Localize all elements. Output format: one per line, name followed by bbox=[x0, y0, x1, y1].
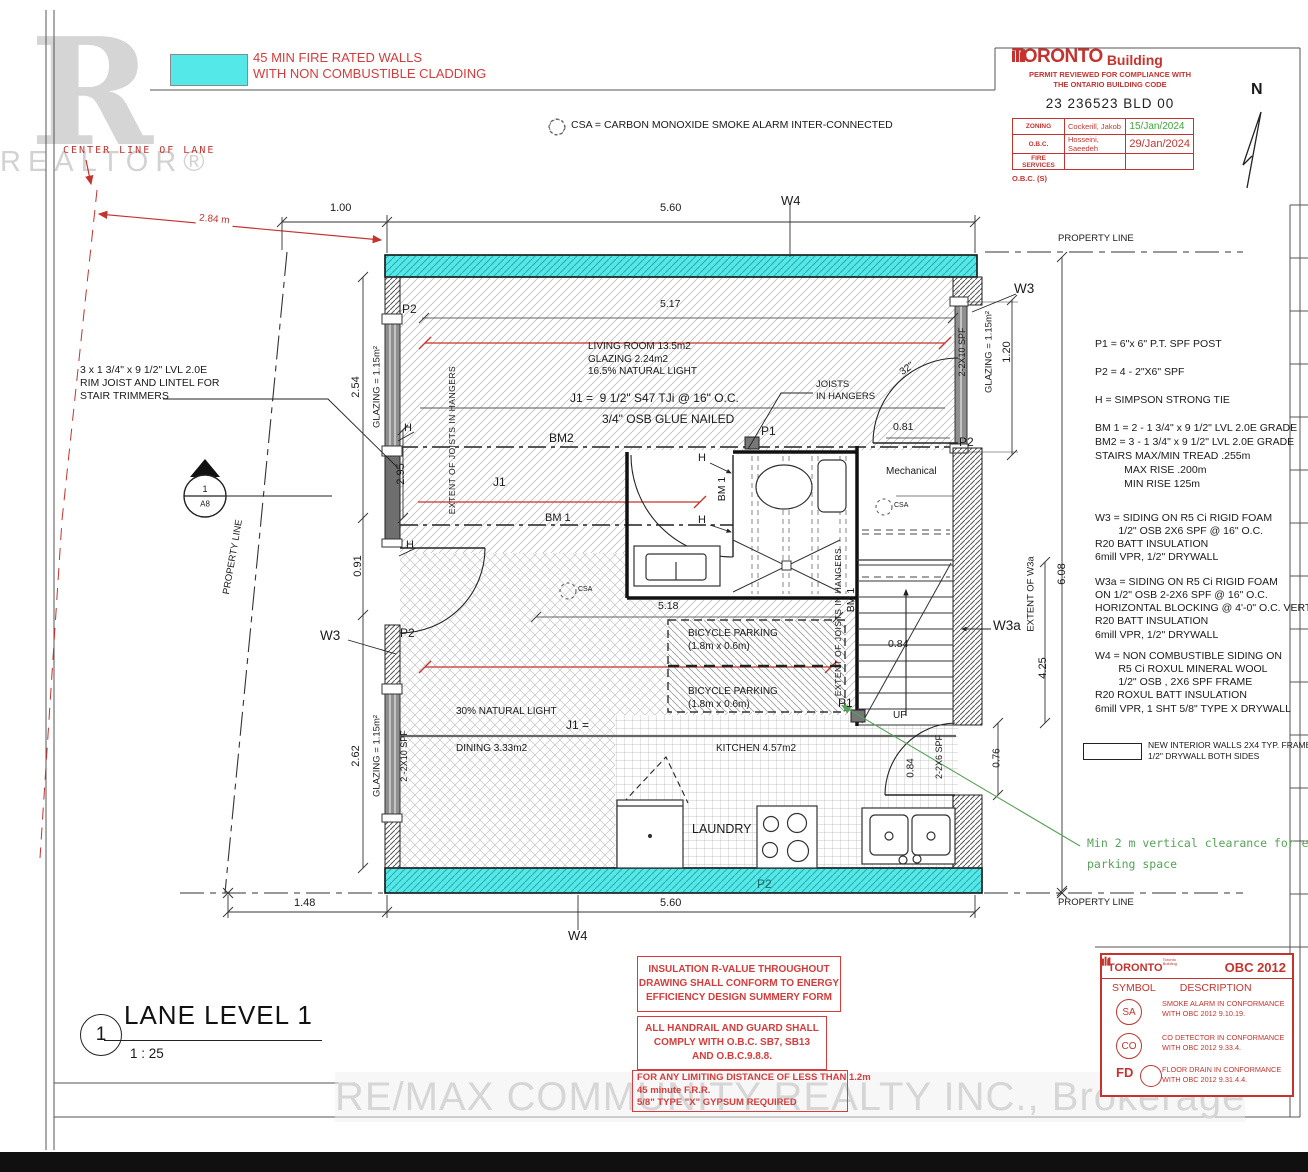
w3a-note: W3a = SIDING ON R5 Ci RIGID FOAM ON 1/2"… bbox=[1095, 576, 1308, 642]
bm1-vertical-2: BM 1 bbox=[845, 588, 857, 613]
mechanical-label: Mechanical bbox=[886, 466, 937, 479]
vanity-sink bbox=[634, 546, 720, 586]
bm2-label: BM2 bbox=[549, 431, 574, 446]
dim-0-81: 0.81 bbox=[893, 421, 913, 434]
review-date: 29/Jan/2024 bbox=[1126, 135, 1194, 154]
lane-centerline-label: CENTER LINE OF LANE bbox=[63, 145, 215, 158]
dim-5-17: 5.17 bbox=[660, 298, 680, 311]
obc-title: OBC 2012 bbox=[1225, 960, 1286, 975]
reviewer-name bbox=[1065, 154, 1126, 170]
joists-hangers-label: JOISTS IN HANGERS bbox=[816, 379, 875, 403]
h-label-bath2: H bbox=[698, 514, 706, 528]
kitchen-label: KITCHEN 4.57m2 bbox=[716, 743, 796, 756]
csa-label-2: CSA bbox=[578, 586, 592, 595]
w3-label-left: W3 bbox=[320, 628, 340, 645]
co-symbol-icon: CO bbox=[1116, 1033, 1142, 1059]
p2-left-mid: P2 bbox=[400, 626, 415, 641]
section-marker-sheet: A8 bbox=[200, 500, 210, 509]
extent-joists-left: EXTENT OF JOISTS IN HANGERS bbox=[447, 366, 457, 514]
lane-note-arrow bbox=[86, 160, 91, 184]
j1-spec-label: J1 = 9 1/2" S47 TJi @ 16" O.C. bbox=[570, 391, 739, 406]
insulation-note-box: INSULATION R-VALUE THROUGHOUT DRAWING SH… bbox=[637, 956, 841, 1012]
obc-col-symbol: SYMBOL bbox=[1112, 982, 1156, 994]
dim-0-84-vert: 0.84 bbox=[906, 758, 917, 777]
w3-note: W3 = SIDING ON R5 Ci RIGID FOAM 1/2" OSB… bbox=[1095, 512, 1272, 565]
w4-label-top: W4 bbox=[781, 193, 801, 209]
dim-1-20: 1.20 bbox=[1001, 341, 1013, 362]
dim-5-60-top: 5.60 bbox=[660, 202, 681, 216]
property-line-bottom: PROPERTY LINE bbox=[1058, 897, 1134, 909]
dim-1-00: 1.00 bbox=[330, 202, 351, 216]
review-date bbox=[1126, 154, 1194, 170]
stamp-subtitle: PERMIT REVIEWED FOR COMPLIANCE WITH THE … bbox=[1012, 70, 1208, 90]
north-arrow-icon bbox=[1243, 112, 1261, 188]
co-desc: CO DETECTOR IN CONFORMANCE WITH OBC 2012… bbox=[1162, 1033, 1284, 1053]
dim-2-62: 2.62 bbox=[350, 745, 362, 766]
dining-label: DINING 3.33m2 bbox=[456, 743, 527, 756]
stamp-footer: O.B.C. (S) bbox=[1012, 174, 1208, 183]
row-label: FIRE SERVICES bbox=[1013, 154, 1065, 170]
limiting-distance-note-box: FOR ANY LIMITING DISTANCE OF LESS THAN 1… bbox=[632, 1070, 848, 1112]
permit-number: 23 236523 BLD 00 bbox=[1012, 96, 1208, 111]
interior-walls-note: NEW INTERIOR WALLS 2X4 TYP. FRAME 1/2" D… bbox=[1148, 740, 1308, 761]
north-label: N bbox=[1251, 80, 1263, 100]
laundry-label: LAUNDRY bbox=[692, 822, 752, 838]
fd-circle-icon bbox=[1140, 1065, 1162, 1087]
fd-desc: FLOOR DRAIN IN CONFORMANCE WITH OBC 2012… bbox=[1162, 1065, 1281, 1085]
brand-building: Building bbox=[1107, 52, 1163, 68]
bottom-bar bbox=[0, 1152, 1308, 1172]
csa-label-mech: CSA bbox=[894, 502, 908, 511]
bm1-label: BM 1 bbox=[545, 512, 571, 526]
p1-label-bottom: P1 bbox=[838, 696, 853, 711]
toronto-logo-icon bbox=[1102, 955, 1113, 966]
w4-note: W4 = NON COMBUSTIBLE SIDING ON R5 Ci ROX… bbox=[1095, 650, 1291, 716]
dim-4-25: 4.25 bbox=[1037, 657, 1049, 678]
j1-eq-label: J1 = bbox=[566, 718, 589, 733]
h-left-2: H bbox=[406, 539, 414, 553]
toronto-building-logo: TORONTO Building bbox=[1012, 46, 1208, 68]
p2-bottom: P2 bbox=[757, 877, 772, 892]
reviewer-name: Cockerill, Jakob bbox=[1065, 119, 1126, 135]
table-row: ZONING Cockerill, Jakob 15/Jan/2024 bbox=[1013, 119, 1194, 135]
p1-label-top: P1 bbox=[761, 424, 776, 439]
w3-label-right: W3 bbox=[1014, 281, 1034, 298]
dim-2-95: 2.95 bbox=[395, 463, 407, 484]
dim-0-91: 0.91 bbox=[352, 555, 364, 576]
csa-note-label: CSA = CARBON MONOXIDE SMOKE ALARM INTER-… bbox=[571, 119, 893, 132]
spf-2x10-right: 2-2X10 SPF bbox=[957, 327, 967, 376]
drawing-number: 1 bbox=[96, 1024, 107, 1046]
p2-right: P2 bbox=[959, 435, 974, 450]
bicycle-parking-2: BICYCLE PARKING (1.8m x 0.6m) bbox=[688, 686, 778, 711]
natural-light-label: 30% NATURAL LIGHT bbox=[456, 706, 557, 719]
glazing-left-bottom: GLAZING = 1.15m² bbox=[372, 715, 383, 797]
w3a-label: W3a bbox=[993, 618, 1021, 635]
stove bbox=[757, 806, 817, 868]
up-label: UP bbox=[893, 710, 907, 723]
extent-joists-right: EXTENT OF JOISTS IN HANGERS bbox=[833, 548, 843, 696]
section-marker-num: 1 bbox=[202, 484, 207, 494]
title-underline bbox=[104, 1040, 322, 1041]
sa-symbol-icon: SA bbox=[1116, 999, 1142, 1025]
h-label-bath1: H bbox=[698, 452, 706, 466]
rim-joist-note: 3 x 1 3/4" x 9 1/2" LVL 2.0E RIM JOIST A… bbox=[80, 364, 219, 403]
row-label: O.B.C. bbox=[1013, 135, 1065, 154]
fire-legend-label: 45 MIN FIRE RATED WALLS WITH NON COMBUST… bbox=[253, 50, 486, 83]
drawing-sheet: R REALTOR® bbox=[0, 0, 1308, 1172]
dim-0-84: 0.84 bbox=[888, 638, 908, 651]
obc-brand-sub: Toronto Building bbox=[1163, 958, 1177, 967]
obc-header: TORONTOToronto Building OBC 2012 bbox=[1102, 955, 1292, 979]
fd-symbol: FD bbox=[1116, 1065, 1133, 1080]
osb-label: 3/4" OSB GLUE NAILED bbox=[602, 412, 734, 427]
dim-0-76: 0.76 bbox=[992, 748, 1003, 767]
csa-icon bbox=[549, 119, 565, 135]
dim-1-48: 1.48 bbox=[294, 897, 315, 911]
sa-desc: SMOKE ALARM IN CONFORMANCE WITH OBC 2012… bbox=[1162, 999, 1284, 1019]
lane-centerline-dashed bbox=[40, 190, 97, 858]
review-date: 15/Jan/2024 bbox=[1126, 119, 1194, 135]
spf-2x10-left: 2 -2X10 SPF bbox=[399, 730, 409, 782]
dim-6-08: 6.08 bbox=[1056, 563, 1068, 584]
bicycle-parking-1: BICYCLE PARKING (1.8m x 0.6m) bbox=[688, 628, 778, 653]
drawing-scale: 1 : 25 bbox=[130, 1046, 164, 1061]
dim-5-18: 5.18 bbox=[658, 600, 678, 613]
stamp-review-table: ZONING Cockerill, Jakob 15/Jan/2024 O.B.… bbox=[1012, 118, 1194, 170]
obc-legend: TORONTOToronto Building OBC 2012 SYMBOL … bbox=[1100, 953, 1294, 1097]
posts-notes: P1 = 6"x 6" P.T. SPF POST P2 = 4 - 2"X6"… bbox=[1095, 338, 1297, 491]
toronto-logo-icon bbox=[1012, 46, 1029, 62]
obc-brand: TORONTO bbox=[1108, 962, 1163, 974]
j1-label: J1 bbox=[493, 475, 506, 490]
row-label: ZONING bbox=[1013, 119, 1065, 135]
handrail-note-box: ALL HANDRAIL AND GUARD SHALL COMPLY WITH… bbox=[637, 1016, 827, 1070]
property-line-top: PROPERTY LINE bbox=[1058, 233, 1134, 245]
laundry-appliance bbox=[617, 800, 683, 868]
h-left-1: H bbox=[404, 422, 412, 436]
w4-label-bottom: W4 bbox=[568, 928, 588, 944]
glazing-left-top: GLAZING = 1.15m² bbox=[372, 346, 383, 428]
dim-2-54: 2.54 bbox=[350, 376, 362, 397]
drawing-number-circle: 1 bbox=[80, 1014, 122, 1056]
extent-w3a-label: EXTENT OF W3a bbox=[1026, 556, 1037, 631]
table-row: O.B.C. Hosseini, Saeedeh 29/Jan/2024 bbox=[1013, 135, 1194, 154]
drawing-title: LANE LEVEL 1 bbox=[124, 1000, 313, 1031]
reviewer-name: Hosseini, Saeedeh bbox=[1065, 135, 1126, 154]
green-clearance-note: Min 2 m vertical clearance for each park… bbox=[1087, 833, 1308, 875]
p2-left-top: P2 bbox=[402, 302, 417, 317]
obc-col-desc: DESCRIPTION bbox=[1180, 982, 1252, 994]
interior-wall-swatch bbox=[1083, 743, 1142, 760]
fire-wall-swatch bbox=[170, 54, 248, 86]
kitchen-sink bbox=[862, 808, 955, 864]
table-row: FIRE SERVICES bbox=[1013, 154, 1194, 170]
dim-5-60-bottom: 5.60 bbox=[660, 897, 681, 911]
glazing-right: GLAZING = 1.15m² bbox=[984, 311, 995, 393]
bm1-vertical-1: BM 1 bbox=[716, 477, 728, 502]
living-room-label: LIVING ROOM 13.5m2 GLAZING 2.24m2 16.5% … bbox=[588, 341, 697, 379]
spf-2x6: 2-2X6 SPF bbox=[934, 735, 944, 779]
red-dim-2-84 bbox=[99, 214, 381, 240]
permit-stamp: TORONTO Building PERMIT REVIEWED FOR COM… bbox=[1012, 46, 1208, 183]
